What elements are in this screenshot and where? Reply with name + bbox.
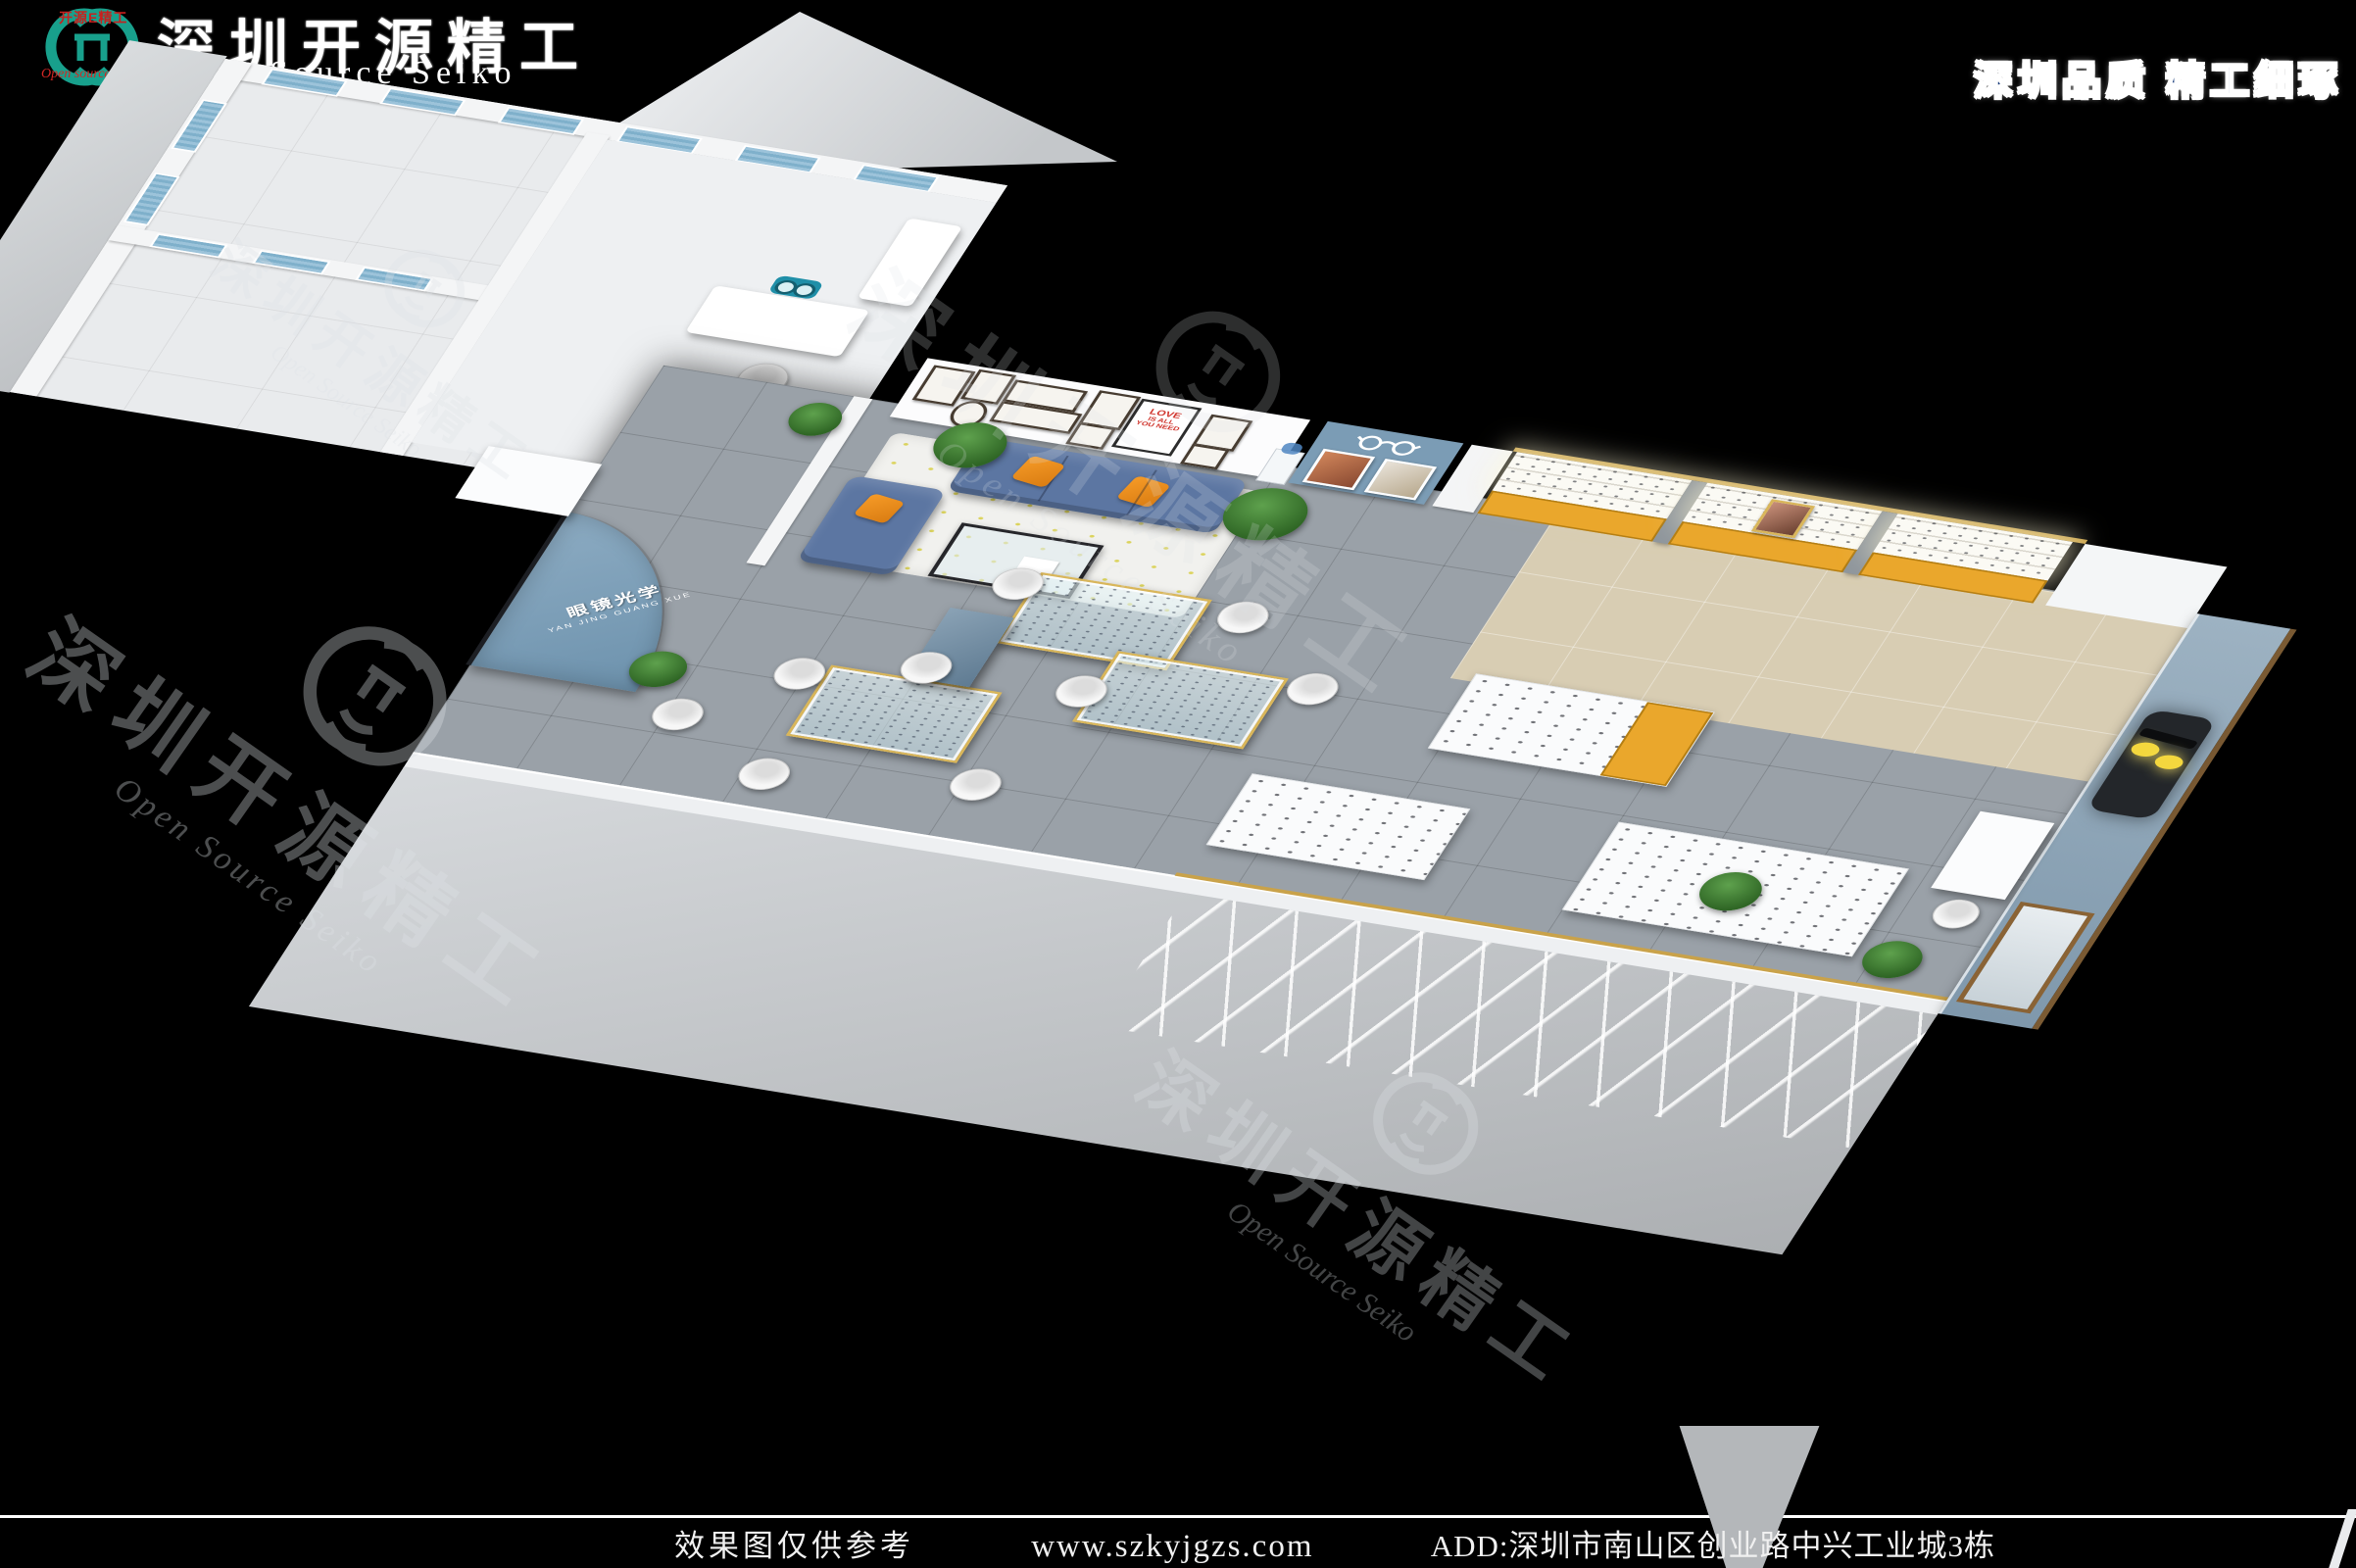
footer-website: www.szkyjgzs.com xyxy=(1031,1529,1313,1565)
exam-cabinet xyxy=(858,219,962,307)
stage: LOVE IS ALL YOU NEED xyxy=(0,0,2356,1568)
store-render: LOVE IS ALL YOU NEED xyxy=(0,0,2356,1568)
picture-frame xyxy=(912,365,976,406)
exam-desk xyxy=(685,285,869,357)
throw-pillow xyxy=(1010,456,1066,488)
model-photo xyxy=(1302,449,1376,491)
floor-plan: LOVE IS ALL YOU NEED xyxy=(0,59,2356,1417)
footer-address: ADD:深圳市南山区创业路中兴工业城3栋 xyxy=(1431,1521,1995,1565)
footer: 效果图仅供参考 www.szkyjgzs.com ADD:深圳市南山区创业路中兴… xyxy=(674,1521,1995,1565)
footer-disclaimer: 效果图仅供参考 xyxy=(674,1521,914,1565)
pixel-face-brow xyxy=(2138,727,2199,750)
throw-pillow xyxy=(853,493,905,523)
throw-pillow xyxy=(1116,475,1172,508)
footer-divider-line xyxy=(0,1515,2356,1518)
model-photo xyxy=(1364,459,1438,501)
